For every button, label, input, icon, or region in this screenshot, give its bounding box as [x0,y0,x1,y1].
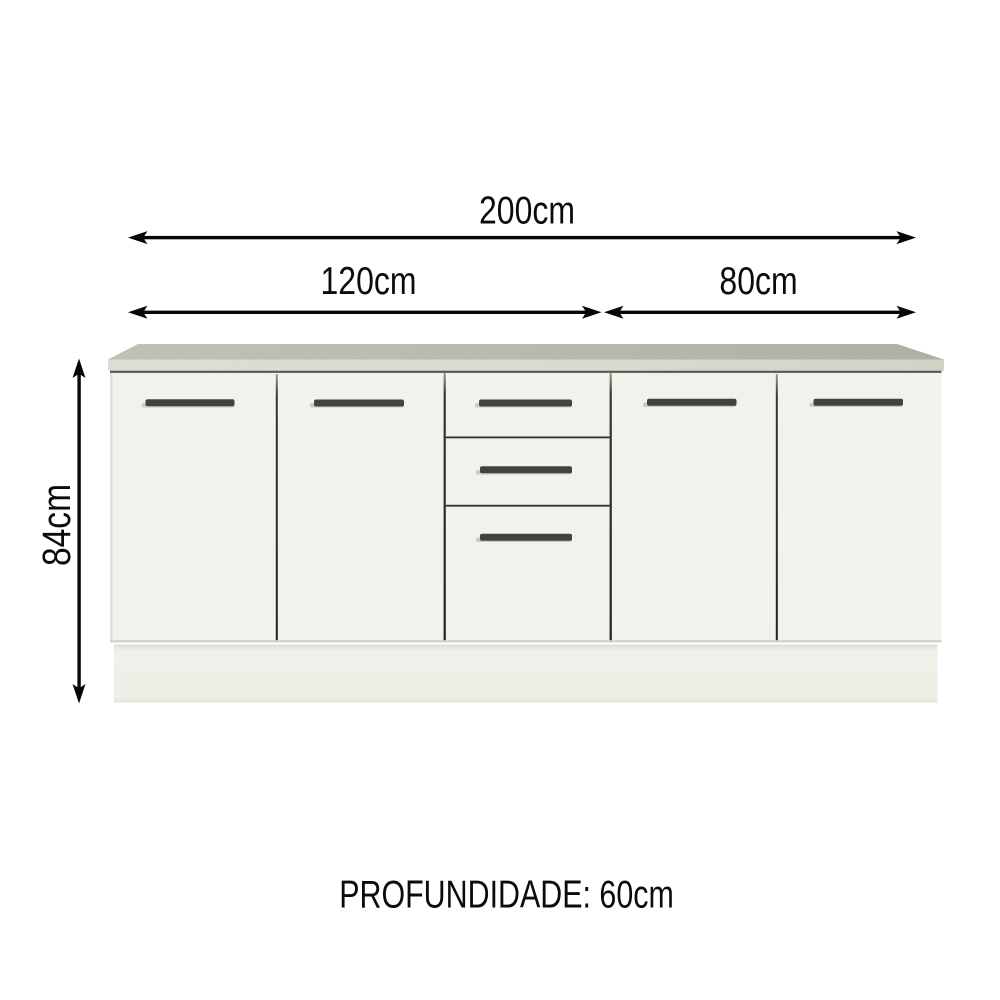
svg-text:80cm: 80cm [719,259,797,303]
svg-text:PROFUNDIDADE: 60cm: PROFUNDIDADE: 60cm [339,873,674,916]
svg-text:120cm: 120cm [321,259,417,303]
svg-text:84cm: 84cm [34,484,78,566]
svg-text:200cm: 200cm [479,189,575,233]
